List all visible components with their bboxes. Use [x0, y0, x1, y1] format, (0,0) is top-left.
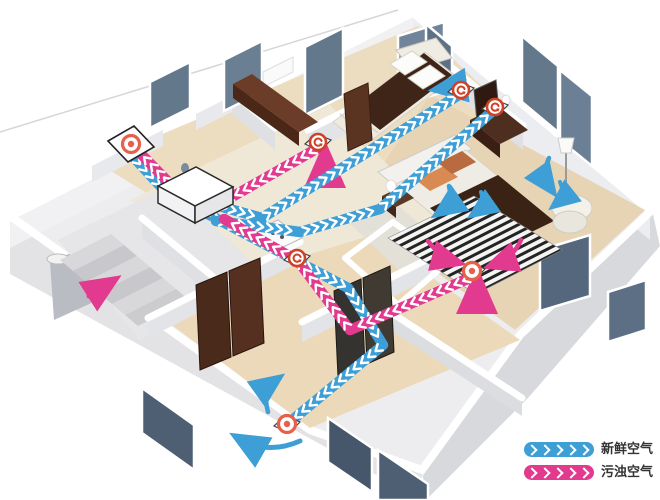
chevron-icon	[552, 444, 563, 455]
vent-swirl-icon	[310, 134, 326, 150]
legend-label: 新鲜空气	[601, 443, 653, 456]
chevron-icon	[539, 444, 550, 455]
chevron-icon	[526, 467, 537, 478]
chevron-icon	[565, 467, 576, 478]
house-isometric-scene	[0, 0, 660, 500]
chevron-icon	[578, 467, 589, 478]
vent-swirl-icon	[289, 250, 305, 266]
vent-swirl-icon	[453, 82, 469, 98]
window	[150, 62, 190, 128]
window	[608, 280, 646, 342]
chevron-icon	[565, 444, 576, 455]
vent-ring-dot	[469, 268, 475, 274]
vent-ring-dot	[128, 141, 134, 147]
fresh-air-duct-icon	[524, 442, 594, 457]
vent-swirl-icon	[487, 99, 503, 115]
master-door	[344, 83, 372, 151]
polluted-air-duct-icon	[524, 465, 594, 480]
living-circulation-sweep	[240, 439, 300, 448]
chevron-icon	[552, 467, 563, 478]
window	[142, 388, 194, 470]
chevron-icon	[539, 467, 550, 478]
armchair-seat	[553, 211, 587, 233]
legend-label: 污浊空气	[601, 466, 653, 479]
chevron-icon	[578, 444, 589, 455]
legend-item-fresh-air: 新鲜空气	[524, 442, 653, 457]
legend: 新鲜空气 污浊空气	[524, 442, 653, 480]
legend-item-polluted-air: 污浊空气	[524, 465, 653, 480]
vent-ring-dot	[284, 421, 290, 427]
chevron-icon	[526, 444, 537, 455]
floorplan-ventilation-diagram: 新鲜空气 污浊空气	[0, 0, 660, 500]
